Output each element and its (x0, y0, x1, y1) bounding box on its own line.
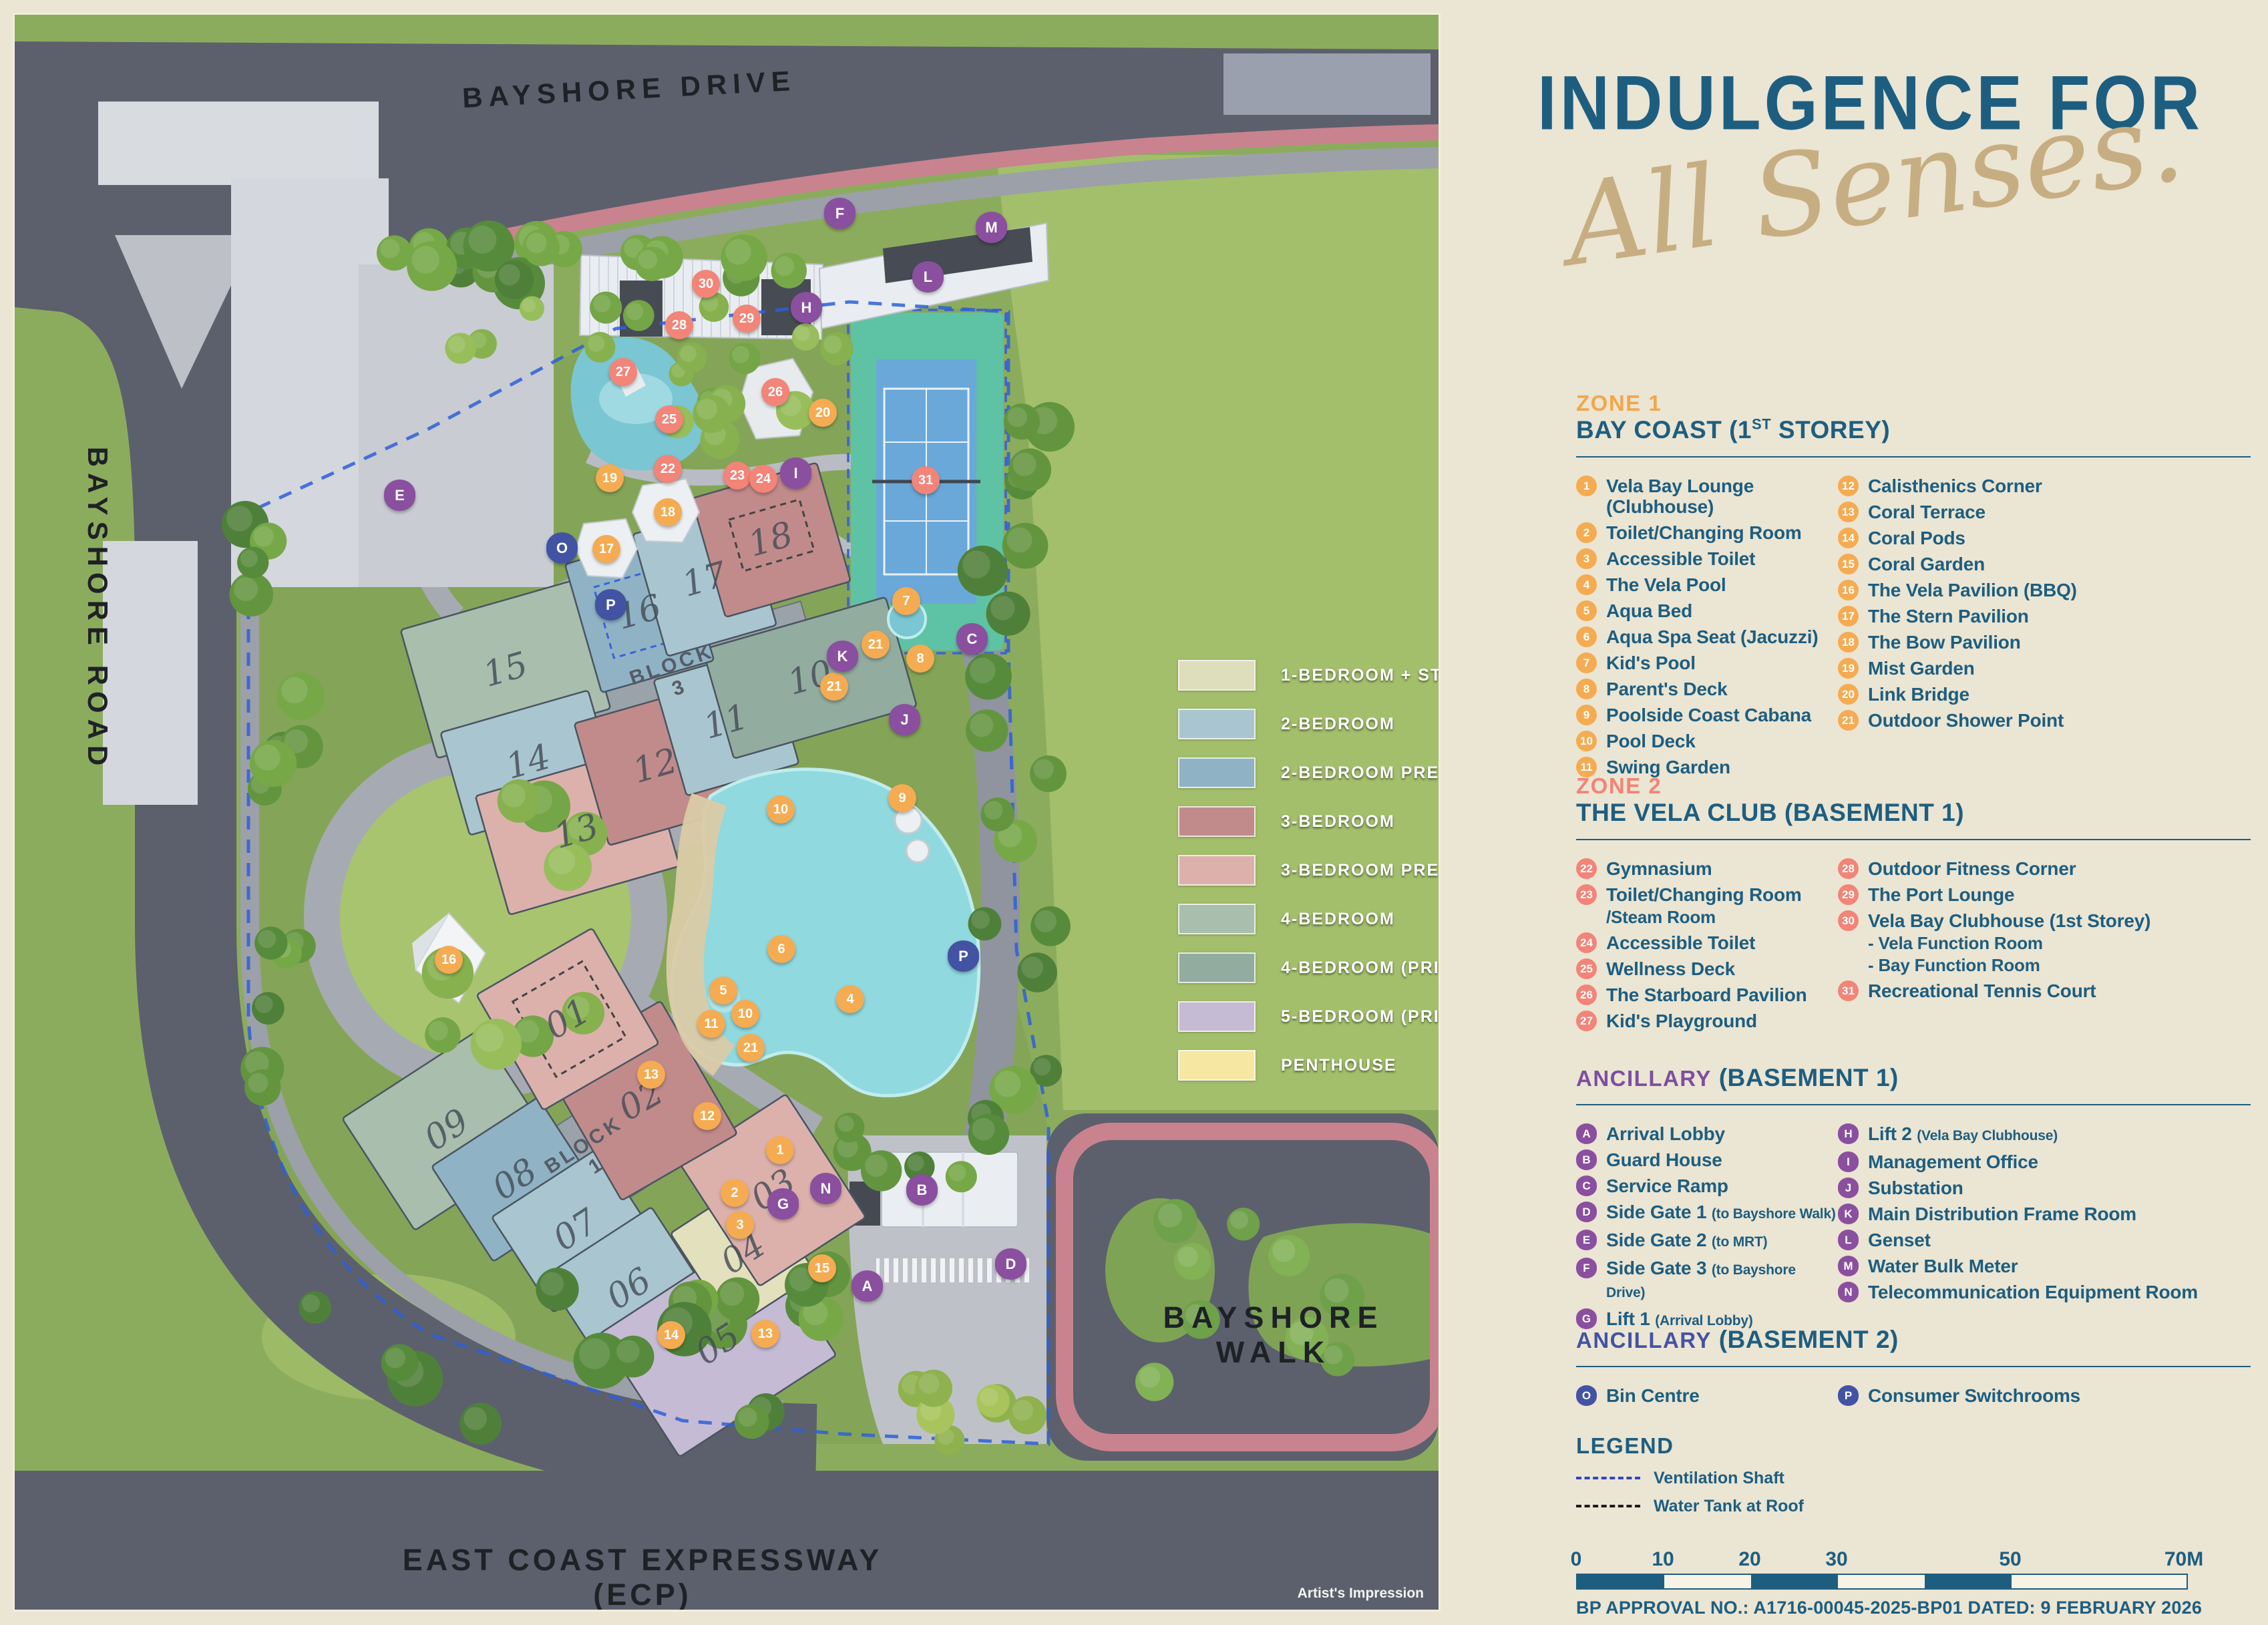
line-legend: LEGEND Ventilation ShaftWater Tank at Ro… (1576, 1433, 1804, 1515)
item-marker: 18 (1838, 632, 1859, 653)
map-marker-6[interactable]: 6 (767, 935, 795, 963)
item-label: Water Bulk Meter (1868, 1256, 2018, 1276)
section-zone-2: ZONE 2THE VELA CLUB (BASEMENT 1)22Gymnas… (1576, 773, 2251, 1037)
item-label: Telecommunication Equipment Room (1868, 1282, 2198, 1302)
section-title: BAY COAST (1ST STOREY) (1576, 416, 1890, 443)
item-label: Coral Garden (1868, 554, 1985, 574)
item-marker: B (1576, 1149, 1597, 1170)
map-marker-13[interactable]: 13 (751, 1320, 779, 1348)
line-legend-row: Water Tank at Roof (1576, 1497, 1804, 1515)
map-marker-O[interactable]: O (546, 532, 578, 564)
item-marker: 13 (1838, 502, 1859, 522)
map-marker-2[interactable]: 2 (721, 1179, 749, 1207)
map-marker-30[interactable]: 30 (692, 270, 720, 298)
scale-tick-50: 50 (1999, 1548, 2021, 1571)
bedroom-legend-row: 1-BEDROOM + STUDY (1178, 660, 1439, 691)
item-label: Service Ramp (1606, 1176, 1728, 1196)
item-marker: 10 (1576, 731, 1597, 751)
item-marker: 14 (1838, 528, 1859, 548)
scale-tick-20: 20 (1738, 1548, 1760, 1571)
item-marker: C (1576, 1176, 1597, 1196)
map-marker-B[interactable]: B (906, 1174, 938, 1206)
map-marker-C[interactable]: C (956, 623, 988, 655)
legend-item-15[interactable]: 15Coral Garden (1838, 554, 2251, 574)
item-label: Calisthenics Corner (1868, 476, 2042, 496)
section-tag: ANCILLARY (1576, 1328, 1712, 1352)
map-marker-15[interactable]: 15 (808, 1254, 836, 1282)
bedroom-legend-row: 5-BEDROOM (PRIVATE LIFT) (1178, 1001, 1439, 1032)
item-label: Aqua Spa Seat (Jacuzzi) (1606, 626, 1818, 647)
item-label: Aqua Bed (1606, 600, 1692, 621)
road-label-ecp: EAST COAST EXPRESSWAY (ECP) (349, 1543, 936, 1610)
item-marker: L (1838, 1230, 1859, 1250)
legend-item-D[interactable]: DSide Gate 1 (to Bayshore Walk) (1576, 1202, 1838, 1224)
item-label: Outdoor Shower Point (1868, 710, 2064, 731)
map-marker-17[interactable]: 17 (592, 535, 620, 563)
map-marker-F[interactable]: F (824, 198, 856, 229)
item-label: Outdoor Fitness Corner (1868, 858, 2076, 879)
legend-item-27[interactable]: 27Kid's Playground (1576, 1011, 1838, 1031)
legend-item-26[interactable]: 26The Starboard Pavilion (1576, 984, 1838, 1005)
legend-item-B[interactable]: BGuard House (1576, 1149, 1838, 1170)
scale-segment (1751, 1575, 1838, 1588)
map-marker-28[interactable]: 28 (665, 311, 693, 339)
legend-item-10[interactable]: 10Pool Deck (1576, 731, 1838, 751)
legend-item-E[interactable]: ESide Gate 2 (to MRT) (1576, 1230, 1838, 1252)
legend-item-19[interactable]: 19Mist Garden (1838, 658, 2251, 679)
item-marker: 31 (1838, 980, 1859, 1001)
scale-tick-70M: 70M (2164, 1548, 2203, 1571)
legend-item-8[interactable]: 8Parent's Deck (1576, 679, 1838, 699)
legend-swatch-label: 1-BEDROOM + STUDY (1281, 666, 1439, 685)
legend-item-3[interactable]: 3Accessible Toilet (1576, 548, 1838, 569)
item-label: Coral Pods (1868, 528, 1965, 548)
artist-impression-note: Artist's Impression (1230, 1586, 1424, 1602)
legend-item-9[interactable]: 9Poolside Coast Cabana (1576, 705, 1838, 725)
item-marker: 20 (1838, 684, 1859, 705)
item-label: Lift 2 (Vela Bay Clubhouse) (1868, 1123, 2058, 1146)
item-marker: E (1576, 1230, 1597, 1250)
legend-item-4[interactable]: 4The Vela Pool (1576, 574, 1838, 595)
legend-item-21[interactable]: 21Outdoor Shower Point (1838, 710, 2251, 731)
scale-segment (1925, 1575, 2012, 1588)
item-label: Side Gate 1 (to Bayshore Walk) (1606, 1202, 1836, 1224)
section-zone-1: ZONE 1BAY COAST (1ST STOREY)1Vela Bay Lo… (1576, 391, 2251, 783)
map-marker-27[interactable]: 27 (609, 358, 637, 386)
item-marker: 21 (1838, 710, 1859, 731)
item-label: Substation (1868, 1178, 1963, 1198)
section-title: (BASEMENT 1) (1712, 1064, 1899, 1091)
legend-item-A[interactable]: AArrival Lobby (1576, 1123, 1838, 1144)
item-label: Accessible Toilet (1606, 548, 1755, 569)
item-label: Genset (1868, 1230, 1931, 1250)
map-marker-11[interactable]: 11 (697, 1010, 725, 1038)
item-marker: 8 (1576, 679, 1597, 699)
item-label: Toilet/Changing Room/Steam Room (1606, 884, 1802, 927)
item-label: Consumer Switchrooms (1868, 1385, 2080, 1406)
item-marker: K (1838, 1204, 1859, 1224)
item-label: Kid's Playground (1606, 1011, 1757, 1031)
item-label: Mist Garden (1868, 658, 1975, 679)
legend-swatch (1178, 1050, 1256, 1081)
item-marker: D (1576, 1202, 1597, 1222)
map-marker-21[interactable]: 21 (820, 673, 848, 701)
map-marker-P[interactable]: P (595, 589, 626, 620)
item-marker: 16 (1838, 580, 1859, 600)
item-label: Main Distribution Frame Room (1868, 1204, 2136, 1224)
map-marker-5[interactable]: 5 (709, 976, 737, 1005)
map-marker-14[interactable]: 14 (657, 1321, 685, 1349)
legend-item-12[interactable]: 12Calisthenics Corner (1838, 476, 2251, 496)
legend-item-31[interactable]: 31Recreational Tennis Court (1838, 980, 2251, 1001)
legend-item-2[interactable]: 2Toilet/Changing Room (1576, 522, 1838, 543)
bedroom-legend-row: PENTHOUSE (1178, 1050, 1397, 1081)
site-plan-page: BAYSHORE DRIVE BAYSHORE ROAD BAYSHORE WA… (0, 0, 2268, 1625)
bedroom-legend-row: 4-BEDROOM (1178, 904, 1395, 934)
map-marker-G[interactable]: G (767, 1188, 799, 1220)
scale-tick-0: 0 (1571, 1548, 1582, 1571)
line-legend-row: Ventilation Shaft (1576, 1469, 1804, 1487)
item-marker: 23 (1576, 884, 1597, 905)
item-marker: 28 (1838, 858, 1859, 879)
map-marker-J[interactable]: J (889, 704, 920, 735)
item-marker: 26 (1576, 984, 1597, 1005)
legend-swatch (1178, 757, 1256, 788)
item-marker: 25 (1576, 958, 1597, 979)
item-marker: 1 (1576, 476, 1597, 496)
legend-swatch (1178, 709, 1256, 739)
bp-approval-text: BP APPROVAL NO.: A1716-00045-2025-BP01 D… (1576, 1598, 2202, 1618)
map-marker-A[interactable]: A (852, 1270, 883, 1302)
scale-tick-10: 10 (1652, 1548, 1674, 1571)
item-label: Wellness Deck (1606, 958, 1735, 979)
map-marker-26[interactable]: 26 (761, 378, 789, 406)
legend-swatch (1178, 855, 1256, 886)
map-marker-1[interactable]: 1 (766, 1136, 794, 1164)
line-legend-label: Ventilation Shaft (1654, 1469, 1784, 1488)
legend-swatch-label: 2-BEDROOM (1281, 715, 1395, 734)
legend-title: LEGEND (1576, 1433, 1804, 1459)
legend-swatch-label: 4-BEDROOM (PRIVATE LIFT) (1281, 958, 1439, 978)
item-label: Vela Bay Clubhouse (1st Storey)- Vela Fu… (1868, 910, 2150, 975)
item-marker: M (1838, 1256, 1859, 1276)
map-marker-22[interactable]: 22 (654, 455, 682, 483)
item-label: Kid's Pool (1606, 653, 1696, 673)
legend-item-L[interactable]: LGenset (1838, 1230, 2251, 1250)
item-label: Bin Centre (1606, 1385, 1700, 1406)
section-tag: ZONE 2 (1576, 773, 1662, 798)
legend-item-24[interactable]: 24Accessible Toilet (1576, 932, 1838, 953)
item-label: Side Gate 2 (to MRT) (1606, 1230, 1767, 1252)
item-marker: 7 (1576, 653, 1597, 673)
legend-item-C[interactable]: CService Ramp (1576, 1176, 1838, 1196)
scale-tick-30: 30 (1825, 1548, 1847, 1571)
legend-item-7[interactable]: 7Kid's Pool (1576, 653, 1838, 673)
item-marker: O (1576, 1385, 1597, 1406)
map-marker-K[interactable]: K (827, 641, 858, 672)
item-label: Vela Bay Lounge (Clubhouse) (1606, 476, 1838, 517)
legend-item-M[interactable]: MWater Bulk Meter (1838, 1256, 2251, 1276)
item-label: Accessible Toilet (1606, 932, 1755, 953)
item-label: Poolside Coast Cabana (1606, 705, 1811, 725)
road-label-bayshore-road: BAYSHORE ROAD (81, 442, 114, 776)
item-marker: 5 (1576, 600, 1597, 621)
item-label: Arrival Lobby (1606, 1123, 1725, 1144)
item-marker: P (1838, 1385, 1859, 1406)
legend-item-20[interactable]: 20Link Bridge (1838, 684, 2251, 705)
map-marker-25[interactable]: 25 (655, 405, 683, 433)
dashed-line-sample (1576, 1505, 1640, 1507)
section-title: (BASEMENT 2) (1712, 1326, 1899, 1353)
item-marker: 27 (1576, 1011, 1597, 1031)
item-label: Side Gate 3 (to Bayshore Drive) (1606, 1258, 1838, 1303)
map-marker-N[interactable]: N (810, 1173, 841, 1204)
info-panel: INDULGENCE FOR All Senses. ZONE 1BAY COA… (1515, 0, 2268, 1625)
site-plan-map[interactable]: BAYSHORE DRIVE BAYSHORE ROAD BAYSHORE WA… (15, 15, 1439, 1610)
item-label: Parent's Deck (1606, 679, 1728, 699)
legend-swatch-label: PENTHOUSE (1281, 1056, 1397, 1075)
legend-item-I[interactable]: IManagement Office (1838, 1151, 2251, 1172)
item-label: Gymnasium (1606, 858, 1712, 879)
map-marker-7[interactable]: 7 (892, 587, 920, 615)
item-label: Guard House (1606, 1149, 1722, 1170)
legend-item-25[interactable]: 25Wellness Deck (1576, 958, 1838, 979)
section-tag: ZONE 1 (1576, 391, 1662, 415)
item-marker: N (1838, 1282, 1859, 1302)
item-label: The Starboard Pavilion (1606, 984, 1807, 1005)
map-marker-E[interactable]: E (384, 480, 415, 511)
item-label: The Vela Pool (1606, 574, 1726, 595)
item-marker: F (1576, 1258, 1597, 1278)
item-marker: 29 (1838, 884, 1859, 905)
dashed-line-sample (1576, 1477, 1640, 1479)
legend-item-16[interactable]: 16The Vela Pavilion (BBQ) (1838, 580, 2251, 600)
legend-swatch-label: 4-BEDROOM (1281, 910, 1395, 929)
map-marker-20[interactable]: 20 (809, 399, 837, 427)
map-marker-18[interactable]: 18 (654, 498, 682, 526)
legend-swatch (1178, 1001, 1256, 1032)
legend-item-17[interactable]: 17The Stern Pavilion (1838, 606, 2251, 626)
legend-item-P[interactable]: PConsumer Switchrooms (1838, 1385, 2251, 1406)
legend-item-F[interactable]: FSide Gate 3 (to Bayshore Drive) (1576, 1258, 1838, 1303)
map-marker-9[interactable]: 9 (888, 784, 916, 812)
item-label: Coral Terrace (1868, 502, 1986, 522)
map-marker-13[interactable]: 13 (637, 1061, 665, 1089)
item-marker: H (1838, 1123, 1859, 1144)
legend-item-J[interactable]: JSubstation (1838, 1178, 2251, 1198)
item-marker: I (1838, 1151, 1859, 1172)
item-marker: 12 (1838, 476, 1859, 496)
scale-segment (1577, 1575, 1664, 1588)
legend-item-28[interactable]: 28Outdoor Fitness Corner (1838, 858, 2251, 879)
scale-bar: 01020305070M (1576, 1548, 2187, 1588)
section-tag: ANCILLARY (1576, 1066, 1712, 1091)
legend-swatch (1178, 904, 1256, 934)
item-label: Pool Deck (1606, 731, 1696, 751)
map-marker-P[interactable]: P (948, 940, 979, 972)
legend-swatch-label: 5-BEDROOM (PRIVATE LIFT) (1281, 1007, 1439, 1027)
map-marker-21[interactable]: 21 (737, 1034, 765, 1062)
item-marker: 6 (1576, 626, 1597, 647)
legend-item-1[interactable]: 1Vela Bay Lounge (Clubhouse) (1576, 476, 1838, 517)
section-title: THE VELA CLUB (BASEMENT 1) (1576, 799, 1964, 826)
legend-item-14[interactable]: 14Coral Pods (1838, 528, 2251, 548)
legend-item-22[interactable]: 22Gymnasium (1576, 858, 1838, 879)
map-marker-D[interactable]: D (995, 1248, 1026, 1280)
item-label: Recreational Tennis Court (1868, 980, 2096, 1001)
map-marker-H[interactable]: H (791, 292, 822, 323)
legend-swatch-label: 2-BEDROOM PREMIUM (1281, 763, 1439, 783)
bedroom-legend-row: 3-BEDROOM PREMIUM (1178, 855, 1439, 886)
legend-item-30[interactable]: 30Vela Bay Clubhouse (1st Storey)- Vela … (1838, 910, 2251, 975)
legend-item-6[interactable]: 6Aqua Spa Seat (Jacuzzi) (1576, 626, 1838, 647)
map-marker-21[interactable]: 21 (862, 630, 890, 659)
line-legend-label: Water Tank at Roof (1654, 1497, 1804, 1516)
legend-item-5[interactable]: 5Aqua Bed (1576, 600, 1838, 621)
section-ancillary: ANCILLARY (BASEMENT 2)OBin CentrePConsum… (1576, 1322, 2251, 1411)
map-marker-12[interactable]: 12 (693, 1102, 721, 1130)
item-marker: 2 (1576, 522, 1597, 543)
item-marker: 4 (1576, 574, 1597, 595)
map-marker-10[interactable]: 10 (767, 795, 795, 824)
item-label: The Vela Pavilion (BBQ) (1868, 580, 2077, 600)
item-label: Link Bridge (1868, 684, 1969, 705)
road-label-bayshore-walk: BAYSHORE WALK (1117, 1300, 1431, 1370)
map-marker-29[interactable]: 29 (733, 305, 761, 333)
legend-item-23[interactable]: 23Toilet/Changing Room/Steam Room (1576, 884, 1838, 927)
map-marker-23[interactable]: 23 (723, 462, 751, 490)
legend-item-13[interactable]: 13Coral Terrace (1838, 502, 2251, 522)
item-marker: 3 (1576, 548, 1597, 569)
legend-swatch (1178, 806, 1256, 837)
item-marker: J (1838, 1178, 1859, 1198)
item-label: The Stern Pavilion (1868, 606, 2029, 626)
section-ancillary: ANCILLARY (BASEMENT 1)AArrival LobbyBGua… (1576, 1061, 2251, 1336)
legend-item-H[interactable]: HLift 2 (Vela Bay Clubhouse) (1838, 1123, 2251, 1146)
legend-item-K[interactable]: KMain Distribution Frame Room (1838, 1204, 2251, 1224)
legend-item-18[interactable]: 18The Bow Pavilion (1838, 632, 2251, 653)
item-marker: 22 (1576, 858, 1597, 879)
legend-item-O[interactable]: OBin Centre (1576, 1385, 1838, 1406)
item-marker: A (1576, 1123, 1597, 1144)
item-marker: 9 (1576, 705, 1597, 725)
legend-swatch (1178, 660, 1256, 691)
map-marker-I[interactable]: I (780, 458, 811, 489)
bedroom-legend-row: 3-BEDROOM (1178, 806, 1395, 837)
bedroom-legend-row: 2-BEDROOM (1178, 709, 1395, 739)
map-marker-M[interactable]: M (976, 212, 1007, 243)
map-marker-4[interactable]: 4 (836, 985, 864, 1013)
map-marker-31[interactable]: 31 (912, 466, 940, 494)
map-marker-16[interactable]: 16 (435, 946, 463, 974)
item-marker: 17 (1838, 606, 1859, 626)
legend-swatch-label: 3-BEDROOM PREMIUM (1281, 861, 1439, 880)
legend-swatch (1178, 952, 1256, 983)
legend-swatch-label: 3-BEDROOM (1281, 812, 1395, 832)
map-marker-8[interactable]: 8 (906, 645, 934, 673)
item-marker: 30 (1838, 910, 1859, 931)
map-marker-10[interactable]: 10 (731, 1000, 759, 1028)
item-marker: 15 (1838, 554, 1859, 574)
item-marker: 19 (1838, 658, 1859, 679)
map-marker-L[interactable]: L (912, 261, 944, 293)
item-label: Management Office (1868, 1151, 2038, 1172)
item-label: Toilet/Changing Room (1606, 522, 1802, 543)
bedroom-legend-row: 4-BEDROOM (PRIVATE LIFT) (1178, 952, 1439, 983)
legend-item-N[interactable]: NTelecommunication Equipment Room (1838, 1282, 2251, 1302)
map-marker-24[interactable]: 24 (749, 465, 777, 493)
bedroom-legend-row: 2-BEDROOM PREMIUM (1178, 757, 1439, 788)
item-label: The Port Lounge (1868, 884, 2014, 905)
map-marker-3[interactable]: 3 (726, 1211, 754, 1239)
legend-item-29[interactable]: 29The Port Lounge (1838, 884, 2251, 905)
item-marker: 24 (1576, 932, 1597, 953)
item-label: The Bow Pavilion (1868, 632, 2021, 653)
map-marker-19[interactable]: 19 (596, 464, 624, 492)
